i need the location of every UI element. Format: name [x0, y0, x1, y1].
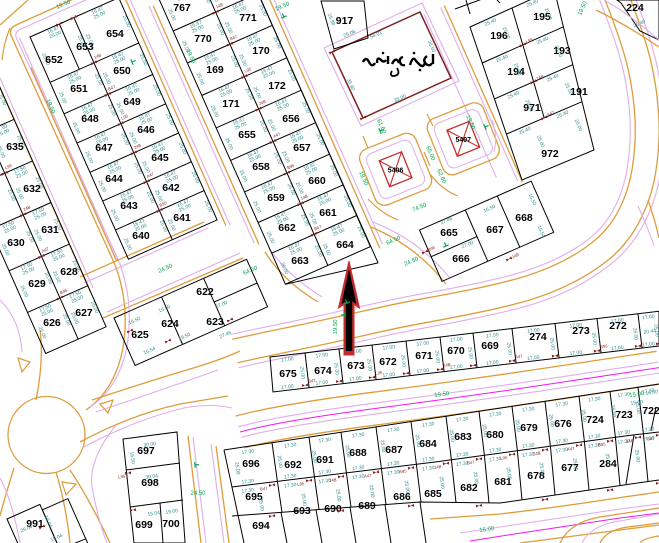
svg-text:24.50: 24.50	[190, 491, 206, 497]
svg-text:666: 666	[452, 253, 470, 265]
svg-text:694: 694	[252, 520, 270, 532]
svg-text:19.50: 19.50	[333, 319, 340, 335]
svg-text:14B: 14B	[434, 464, 442, 470]
svg-text:661: 661	[319, 207, 337, 219]
svg-text:767: 767	[173, 2, 191, 14]
svg-text:647: 647	[95, 142, 113, 154]
svg-text:671: 671	[415, 350, 433, 362]
svg-text:625: 625	[131, 329, 149, 341]
svg-text:649: 649	[123, 96, 141, 108]
svg-text:660: 660	[308, 175, 326, 187]
svg-text:642: 642	[162, 182, 180, 194]
svg-text:648: 648	[81, 113, 99, 125]
svg-text:724: 724	[586, 414, 604, 426]
svg-text:656: 656	[282, 113, 300, 125]
svg-text:654: 654	[106, 28, 124, 40]
svg-text:675: 675	[279, 368, 297, 380]
svg-text:5406: 5406	[388, 167, 404, 174]
svg-text:646: 646	[137, 124, 155, 136]
svg-text:172: 172	[268, 80, 286, 92]
svg-text:624: 624	[161, 318, 179, 330]
svg-text:688: 688	[349, 447, 367, 459]
svg-text:626: 626	[43, 317, 61, 329]
svg-text:673: 673	[347, 360, 365, 372]
svg-text:669: 669	[481, 340, 499, 352]
svg-text:652: 652	[45, 54, 63, 66]
svg-text:650: 650	[113, 65, 131, 77]
svg-text:690: 690	[324, 503, 342, 515]
svg-text:722: 722	[642, 405, 659, 417]
svg-text:171: 171	[222, 98, 240, 110]
svg-text:662: 662	[278, 222, 296, 234]
svg-text:700: 700	[162, 518, 180, 530]
svg-text:699: 699	[135, 519, 153, 531]
svg-text:24B: 24B	[329, 477, 337, 483]
svg-text:641: 641	[173, 212, 191, 224]
svg-text:668: 668	[515, 212, 533, 224]
svg-text:623: 623	[206, 316, 224, 328]
svg-text:645: 645	[151, 152, 169, 164]
svg-text:771: 771	[239, 12, 257, 24]
svg-text:674: 674	[314, 365, 332, 377]
svg-text:628: 628	[60, 266, 78, 278]
svg-text:L95: L95	[500, 455, 508, 461]
svg-text:670: 670	[447, 345, 465, 357]
svg-text:169: 169	[206, 64, 224, 76]
svg-text:683: 683	[454, 431, 472, 443]
svg-text:676: 676	[554, 418, 572, 430]
svg-text:689: 689	[358, 500, 376, 512]
svg-text:685: 685	[424, 488, 442, 500]
svg-text:630: 630	[7, 237, 25, 249]
svg-text:972: 972	[541, 148, 559, 160]
svg-text:696: 696	[242, 458, 260, 470]
svg-text:B95: B95	[600, 343, 609, 349]
svg-text:627: 627	[75, 307, 93, 319]
svg-text:L95: L95	[297, 481, 305, 487]
svg-text:5407: 5407	[456, 137, 472, 144]
svg-text:664: 664	[336, 239, 354, 251]
svg-text:629: 629	[28, 278, 46, 290]
svg-text:14B: 14B	[626, 438, 634, 444]
svg-text:632: 632	[23, 183, 41, 195]
svg-text:917: 917	[336, 15, 354, 27]
svg-text:657: 657	[293, 142, 311, 154]
svg-text:24B: 24B	[533, 450, 541, 456]
svg-text:692: 692	[284, 459, 302, 471]
svg-text:651: 651	[70, 83, 88, 95]
svg-text:643: 643	[120, 200, 138, 212]
svg-text:770: 770	[194, 33, 212, 45]
svg-text:658: 658	[252, 161, 270, 173]
svg-text:723: 723	[615, 409, 633, 421]
svg-text:A47: A47	[515, 353, 524, 359]
svg-text:691: 691	[316, 454, 334, 466]
svg-text:693: 693	[293, 505, 311, 517]
svg-text:635: 635	[6, 141, 24, 153]
svg-text:631: 631	[41, 224, 59, 236]
svg-text:655: 655	[238, 129, 256, 141]
svg-text:170: 170	[252, 45, 270, 57]
svg-text:665: 665	[440, 227, 458, 239]
svg-text:653: 653	[76, 41, 94, 53]
svg-text:659: 659	[267, 192, 285, 204]
svg-text:224: 224	[626, 2, 644, 14]
svg-text:663: 663	[291, 255, 309, 267]
svg-text:667: 667	[486, 224, 504, 236]
svg-text:672: 672	[379, 356, 397, 368]
svg-text:687: 687	[385, 444, 403, 456]
svg-text:L95: L95	[118, 473, 126, 479]
svg-text:640: 640	[132, 230, 150, 242]
svg-text:679: 679	[520, 422, 538, 434]
svg-text:644: 644	[105, 173, 123, 185]
svg-text:622: 622	[196, 286, 214, 298]
